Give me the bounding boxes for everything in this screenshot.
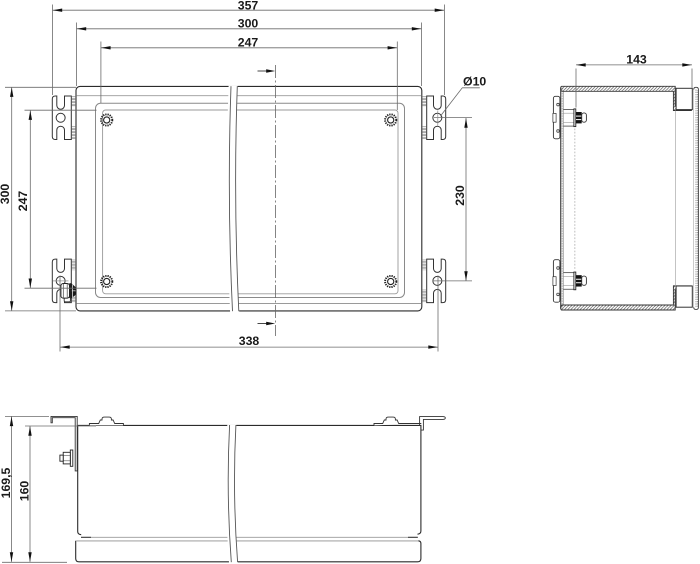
svg-text:143: 143 — [626, 52, 647, 66]
svg-text:160: 160 — [18, 481, 32, 502]
svg-text:300: 300 — [0, 184, 12, 205]
svg-text:169,5: 169,5 — [0, 467, 13, 498]
svg-text:300: 300 — [238, 17, 259, 31]
svg-text:Ø10: Ø10 — [463, 75, 486, 89]
svg-text:247: 247 — [16, 191, 30, 212]
svg-text:230: 230 — [453, 185, 467, 206]
svg-text:247: 247 — [238, 36, 259, 50]
svg-text:338: 338 — [239, 334, 260, 348]
svg-text:357: 357 — [238, 0, 259, 12]
